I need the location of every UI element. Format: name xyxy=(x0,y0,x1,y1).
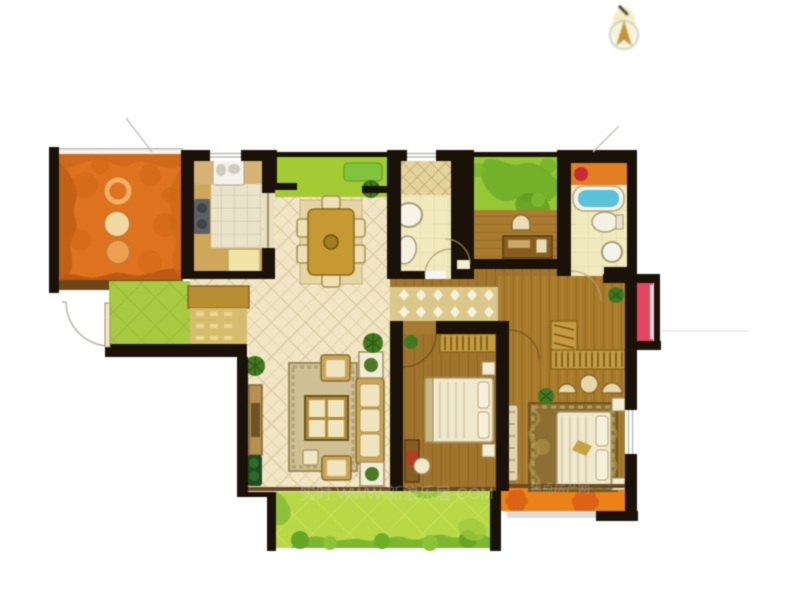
svg-text:焦点房产网: 焦点房产网 xyxy=(530,480,590,495)
svg-text:实时 WWW·新浪乐居·COM: 实时 WWW·新浪乐居·COM xyxy=(300,485,494,503)
